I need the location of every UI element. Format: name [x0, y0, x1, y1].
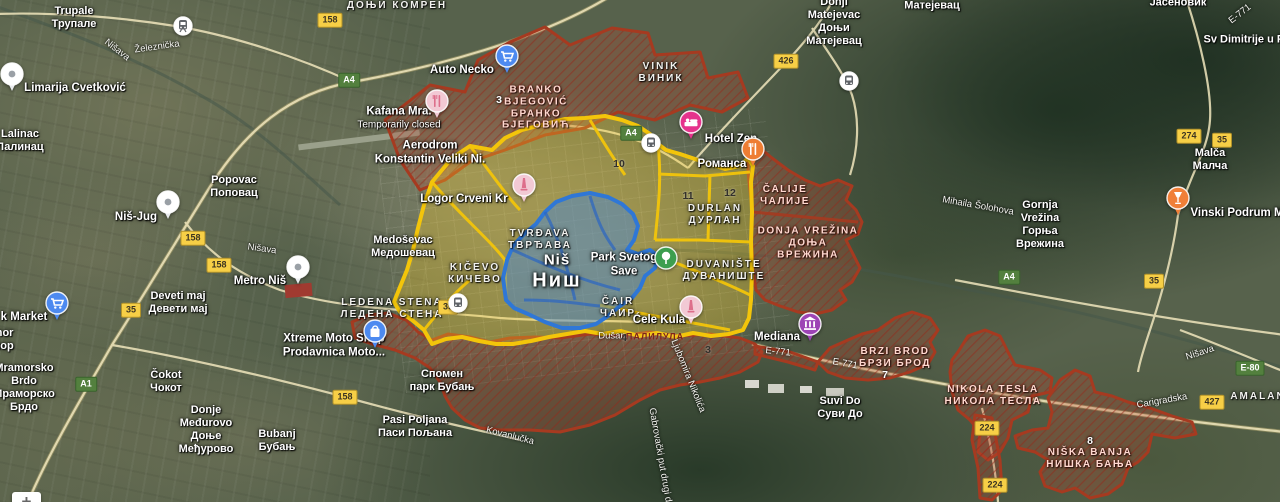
label-gornja-vrezina: GornjaVrežinaГорњаВрежина	[1016, 199, 1064, 251]
label-auto-necko-line: Auto Necko	[430, 64, 494, 78]
label-donje-medjurovo-line: Доње	[179, 430, 234, 443]
label-branko-bjegovic-line: BJEGOVIĆ	[502, 96, 570, 108]
label-vinik-line: ВИНИК	[639, 73, 684, 85]
label-mramor-line: емор	[0, 340, 14, 353]
label-limarija-cvetkovic[interactable]: Limarija Cvetković	[24, 82, 126, 96]
label-nikola-tesla: NIKOLA TESLAНИКОЛА ТЕСЛА	[944, 384, 1041, 408]
label-nisava-3-line: Nišava	[1184, 343, 1215, 363]
route-shield-text: 158	[211, 260, 226, 270]
label-donji-matejevac-line: Matejevac	[806, 9, 862, 22]
label-gabrovacki-put: Gabrovački put drugi d	[646, 407, 674, 502]
label-cokot-line: Čokot	[150, 369, 182, 382]
label-medosevac: MedoševacМедошевац	[371, 234, 435, 260]
label-gabrovacki-put-line: Gabrovački put drugi d	[646, 407, 674, 502]
label-trupale-line: Trupale	[52, 5, 97, 18]
label-ljubomira-nikolica: Ljubomira Nikolića	[668, 338, 707, 414]
label-matejevac: Матејевац	[904, 0, 960, 12]
route-shield-text: 427	[1204, 397, 1219, 407]
label-donji-matejevac: DonjiMatejevacДоњиМатејевац	[806, 0, 862, 48]
region-number-11: 11	[682, 190, 693, 202]
label-mramorsko-brdo: MramorskoBrdoМраморскоБрдо	[0, 362, 55, 414]
label-aerodrom[interactable]: AerodromKonstantin Veliki Ni.	[375, 139, 486, 166]
route-shield-text: 224	[987, 480, 1002, 490]
label-mramor: amorемор	[0, 327, 14, 353]
label-trupale-line: Трупале	[52, 18, 97, 31]
label-kafana-mra-line: Temporarily closed	[357, 119, 440, 131]
label-donji-komren-line: ДОЊИ КОМРЕН	[347, 0, 447, 12]
label-tvrdjava-line: ТВРЂАВА	[508, 240, 572, 252]
label-donji-matejevac-line: Матејевац	[806, 35, 862, 48]
label-spomen-park-bubanj-line: Спомен	[410, 368, 475, 381]
label-nis-jug-line: Niš-Jug	[115, 211, 157, 225]
label-carigradska-line: Carigradska	[1136, 391, 1188, 411]
label-branko-bjegovic: BRANKOBJEGOVIĆБРАНКОБЈЕГОВИЋ	[502, 84, 570, 131]
monument-icon[interactable]	[678, 295, 704, 325]
label-donja-vrezina-line: ВРЕЖИНА	[758, 249, 859, 261]
label-e771-1: E-771	[765, 345, 791, 359]
label-kovanlucka: Kovanlučka	[485, 425, 535, 448]
label-carigradska: Carigradska	[1136, 391, 1188, 411]
region-number-3: 3	[705, 344, 711, 356]
label-tvrdjava-line: TVRĐAVA	[508, 228, 572, 240]
label-branko-bjegovic-line: БЈЕГОВИЋ	[502, 120, 570, 132]
label-durlan-line: ДУРЛАН	[688, 215, 742, 227]
label-trupale: TrupaleТрупале	[52, 5, 97, 31]
wine-icon[interactable]	[1165, 186, 1191, 216]
label-nis-city: NišНиш	[532, 251, 581, 292]
label-suvi-do-line: Суви До	[817, 408, 862, 421]
label-logor-crveni-krst-line: Logor Crveni Kr	[420, 193, 508, 207]
route-shield-35: 35	[1144, 274, 1164, 289]
route-shield-158: 158	[180, 231, 205, 246]
label-calije-line: ЧАЛИЈЕ	[760, 196, 810, 208]
route-shield-224: 224	[982, 478, 1007, 493]
label-cair-line: ČAIR	[600, 296, 636, 308]
label-cokot-line: Чокот	[150, 382, 182, 395]
label-bubanj-line: Bubanj	[258, 428, 295, 441]
label-popovac-line: Popovac	[210, 174, 258, 187]
label-e771-3-line: E-771	[1227, 2, 1254, 26]
label-matejevac-line: Матејевац	[904, 0, 960, 12]
route-shield-35: 35	[121, 303, 141, 318]
label-donje-medjurovo-line: Međurovo	[179, 417, 234, 430]
region-number-7: 7	[882, 369, 888, 381]
label-bubanj: BubanjБубањ	[258, 428, 295, 454]
label-gornja-vrezina-line: Горња	[1016, 225, 1064, 238]
region-number-3: 3	[496, 94, 502, 106]
zoom-in-label: +	[22, 492, 32, 502]
label-mediana[interactable]: Mediana	[754, 331, 800, 345]
label-e771-2-line: E-771	[832, 356, 859, 371]
region-number-text: 4	[621, 332, 627, 344]
label-tvrdjava: TVRĐAVAТВРЂАВА	[508, 228, 572, 252]
label-durlan: DURLANДУРЛАН	[688, 203, 742, 227]
label-kicevo-line: KIČEVO	[448, 262, 502, 274]
label-vinik: VINIKВИНИК	[639, 61, 684, 85]
label-malca: MalčaМалча	[1193, 147, 1228, 173]
label-amalan-line: AMALAN	[1230, 391, 1280, 403]
route-shield-A4: A4	[338, 73, 360, 88]
pin-icon[interactable]	[155, 190, 181, 220]
label-calije-line: ČALIJE	[760, 184, 810, 196]
tree-icon[interactable]	[653, 246, 679, 276]
label-donji-matejevac-line: Donji	[806, 0, 862, 9]
route-shield-427: 427	[1199, 395, 1224, 410]
label-spomen-park-bubanj: Споменпарк Бубањ	[410, 368, 475, 394]
label-gornja-vrezina-line: Gornja	[1016, 199, 1064, 212]
pin-icon[interactable]	[0, 62, 25, 92]
label-mediana-line: Mediana	[754, 331, 800, 345]
label-medosevac-line: Medoševac	[371, 234, 435, 247]
label-nisava-2-line: Nišava	[247, 241, 277, 256]
label-medosevac-line: Медошевац	[371, 247, 435, 260]
label-aerodrom-line: Aerodrom	[375, 139, 486, 153]
route-shield-text: E-80	[1240, 363, 1259, 373]
label-brzi-brod: BRZI BRODБРЗИ БРОД	[859, 346, 931, 370]
label-mihaila-solohova: Mihaila Šolohova	[941, 194, 1014, 218]
label-amalan: AMALAN	[1230, 391, 1280, 403]
label-branko-bjegovic-line: BRANKO	[502, 84, 570, 96]
route-shield-35: 35	[1212, 133, 1232, 148]
label-donja-vrezina: DONJA VREŽINAДОЊАВРЕЖИНА	[758, 225, 859, 260]
label-jasenovik: Јасеновик	[1150, 0, 1207, 9]
label-lalinac-line: Лалинац	[0, 141, 44, 154]
label-bubanj-line: Бубањ	[258, 441, 295, 454]
label-ledena-stena-line: ЛЕДЕНА СТЕНА	[341, 309, 444, 321]
route-shield-158: 158	[332, 390, 357, 405]
label-park-svetog-save[interactable]: Park SvetogSave	[591, 251, 657, 278]
label-gornja-vrezina-line: Врежина	[1016, 238, 1064, 251]
region-number-text: 3	[496, 94, 502, 106]
region-number-text: 12	[724, 187, 736, 199]
route-shield-text: A1	[80, 379, 92, 389]
label-cair-line: ЧАИР	[600, 308, 636, 320]
region-number-text: 8	[1087, 435, 1093, 447]
restaurant-icon[interactable]	[424, 89, 450, 119]
label-mihaila-solohova-line: Mihaila Šolohova	[941, 194, 1014, 218]
label-nis-city-line: Ниш	[532, 269, 581, 293]
label-metro-nis-line: Metro Niš	[234, 275, 286, 289]
transit-icon[interactable]	[836, 69, 862, 99]
route-shield-text: 274	[1181, 131, 1196, 141]
label-pasi-poljana: Pasi PoljanaПаси Пољана	[378, 414, 452, 440]
route-shield-text: 224	[979, 423, 994, 433]
route-shield-text: A4	[625, 128, 637, 138]
label-deveti-maj-line: Deveti maj	[148, 290, 207, 303]
restaurant-icon[interactable]	[740, 137, 766, 167]
label-nisava-1: Nišava	[102, 37, 132, 64]
zoom-in-button[interactable]: +	[12, 492, 41, 502]
label-donji-komren: ДОЊИ КОМРЕН	[347, 0, 447, 12]
label-malca-line: Malča	[1193, 147, 1228, 160]
transit-icon[interactable]	[445, 291, 471, 321]
route-shield-158: 158	[206, 258, 231, 273]
label-jasenovik-line: Јасеновик	[1150, 0, 1207, 9]
route-shield-426: 426	[773, 54, 798, 69]
monument-icon[interactable]	[511, 173, 537, 203]
label-e771-3: E-771	[1227, 2, 1254, 26]
label-mramor-line: amor	[0, 327, 14, 340]
label-calije: ČALIJEЧАЛИЈЕ	[760, 184, 810, 208]
route-shield-224: 224	[974, 421, 999, 436]
map-canvas[interactable]: TrupaleТрупалеLalinacЛалинацДОЊИ КОМРЕНD…	[0, 0, 1280, 502]
label-suvi-do: Suvi DoСуви До	[817, 395, 862, 421]
label-niska-banja-line: NIŠKA BANJA	[1046, 447, 1133, 459]
route-shield-text: 158	[322, 15, 337, 25]
route-shield-158: 158	[317, 13, 342, 28]
label-e771-1-line: E-771	[765, 345, 791, 359]
label-cair: ČAIRЧАИР	[600, 296, 636, 320]
label-mramorsko-brdo-line: Мраморско	[0, 388, 55, 401]
route-shield-text: A4	[1003, 272, 1015, 282]
label-lalinac: LalinacЛалинац	[0, 128, 44, 154]
region-number-4: 4	[621, 332, 627, 344]
label-gornja-vrezina-line: Vrežina	[1016, 212, 1064, 225]
route-shield-A1: A1	[75, 377, 97, 392]
region-number-text: 11	[682, 190, 693, 202]
region-number-10: 10	[613, 158, 625, 170]
region-number-8: 8	[1087, 435, 1093, 447]
region-number-12: 12	[724, 187, 736, 199]
label-donja-vrezina-line: ДОЊА	[758, 237, 859, 249]
label-nis-jug[interactable]: Niš-Jug	[115, 211, 157, 225]
route-shield-text: 35	[126, 305, 136, 315]
label-brzi-brod-line: БРЗИ БРОД	[859, 358, 931, 370]
label-mramorsko-brdo-line: Брдо	[0, 401, 55, 414]
label-malca-line: Малча	[1193, 160, 1228, 173]
label-auto-necko[interactable]: Auto Necko	[430, 64, 494, 78]
label-pasi-poljana-line: Паси Пољана	[378, 427, 452, 440]
label-niska-banja-line: НИШКА БАЊА	[1046, 459, 1133, 471]
bed-icon[interactable]	[678, 110, 704, 140]
label-niska-banja: NIŠKA BANJAНИШКА БАЊА	[1046, 447, 1133, 471]
museum-icon[interactable]	[797, 312, 823, 342]
label-k-market[interactable]: k Market	[1, 311, 48, 325]
label-nisava-2: Nišava	[247, 241, 277, 256]
label-donje-medjurovo: DonjeMeđurovoДоњеМеђурово	[179, 404, 234, 456]
label-ledena-stena: LEDENA STENAЛЕДЕНА СТЕНА	[341, 297, 444, 321]
label-duvaniste-line: ДУВАНИШТЕ	[683, 271, 766, 283]
label-duvaniste-line: DUVANIŠTE	[683, 259, 766, 271]
route-shield-text: 158	[337, 392, 352, 402]
label-park-svetog-save-line: Save	[591, 265, 657, 279]
bag-icon[interactable]	[362, 319, 388, 349]
label-metro-nis[interactable]: Metro Niš	[234, 275, 286, 289]
label-popovac: PopovacПоповац	[210, 174, 258, 200]
route-shield-text: 426	[778, 56, 793, 66]
label-ledena-stena-line: LEDENA STENA	[341, 297, 444, 309]
route-shield-E-80: E-80	[1235, 361, 1264, 376]
label-k-market-line: k Market	[1, 311, 48, 325]
label-donja-vrezina-line: DONJA VREŽINA	[758, 225, 859, 237]
label-vinik-line: VINIK	[639, 61, 684, 73]
shopping-cart-icon[interactable]	[44, 291, 70, 321]
label-e771-2: E-771	[832, 356, 859, 371]
shopping-cart-icon[interactable]	[494, 44, 520, 74]
label-aerodrom-line: Konstantin Veliki Ni.	[375, 153, 486, 167]
label-park-svetog-save-line: Park Svetog	[591, 251, 657, 265]
label-vinski-podrum[interactable]: Vinski Podrum M	[1190, 207, 1280, 221]
label-nisava-3: Nišava	[1184, 343, 1215, 363]
label-donje-medjurovo-line: Међурово	[179, 443, 234, 456]
region-number-text: 3	[705, 344, 711, 356]
route-shield-text: 35	[1217, 135, 1227, 145]
transit-icon[interactable]	[638, 131, 664, 161]
labels-layer: TrupaleТрупалеLalinacЛалинацДОЊИ КОМРЕНD…	[0, 0, 1280, 502]
label-pasi-poljana-line: Pasi Poljana	[378, 414, 452, 427]
label-suvi-do-line: Suvi Do	[817, 395, 862, 408]
label-cokot: ČokotЧокот	[150, 369, 182, 395]
label-popovac-line: Поповац	[210, 187, 258, 200]
label-spomen-park-bubanj-line: парк Бубањ	[410, 381, 475, 394]
route-shield-274: 274	[1176, 129, 1201, 144]
route-shield-A4: A4	[998, 270, 1020, 285]
route-shield-text: 35	[1149, 276, 1159, 286]
region-number-text: 10	[613, 158, 625, 170]
label-brzi-brod-line: BRZI BROD	[859, 346, 931, 358]
label-ljubomira-nikolica-line: Ljubomira Nikolića	[668, 338, 707, 414]
label-duvaniste: DUVANIŠTEДУВАНИШТЕ	[683, 259, 766, 283]
label-lalinac-line: Lalinac	[0, 128, 44, 141]
label-branko-bjegovic-line: БРАНКО	[502, 108, 570, 120]
label-durlan-line: DURLAN	[688, 203, 742, 215]
label-nikola-tesla-line: НИКОЛА ТЕСЛА	[944, 396, 1041, 408]
label-kicevo: KIČEVOКИЧЕВО	[448, 262, 502, 286]
label-donje-medjurovo-line: Donje	[179, 404, 234, 417]
pin-icon[interactable]	[285, 255, 311, 285]
route-shield-text: 158	[185, 233, 200, 243]
label-mramorsko-brdo-line: Mramorsko	[0, 362, 55, 375]
label-limarija-cvetkovic-line: Limarija Cvetković	[24, 82, 126, 96]
label-sv-dimitrije-line: Sv Dimitrije u Pas	[1204, 34, 1280, 47]
label-deveti-maj-line: Девети мај	[148, 303, 207, 316]
label-mramorsko-brdo-line: Brdo	[0, 375, 55, 388]
label-logor-crveni-krst[interactable]: Logor Crveni Kr	[420, 193, 508, 207]
region-number-text: 7	[882, 369, 888, 381]
label-nis-city-line: Niš	[532, 251, 581, 269]
label-vinski-podrum-line: Vinski Podrum M	[1190, 207, 1280, 221]
label-kicevo-line: КИЧЕВО	[448, 274, 502, 286]
label-deveti-maj: Deveti majДевети мај	[148, 290, 207, 316]
label-nikola-tesla-line: NIKOLA TESLA	[944, 384, 1041, 396]
route-shield-text: A4	[343, 75, 355, 85]
label-sv-dimitrije: Sv Dimitrije u Pas	[1204, 34, 1280, 47]
label-donji-matejevac-line: Доњи	[806, 22, 862, 35]
label-nisava-1-line: Nišava	[102, 37, 132, 64]
train-station-icon[interactable]	[170, 14, 196, 44]
label-kovanlucka-line: Kovanlučka	[485, 425, 535, 448]
